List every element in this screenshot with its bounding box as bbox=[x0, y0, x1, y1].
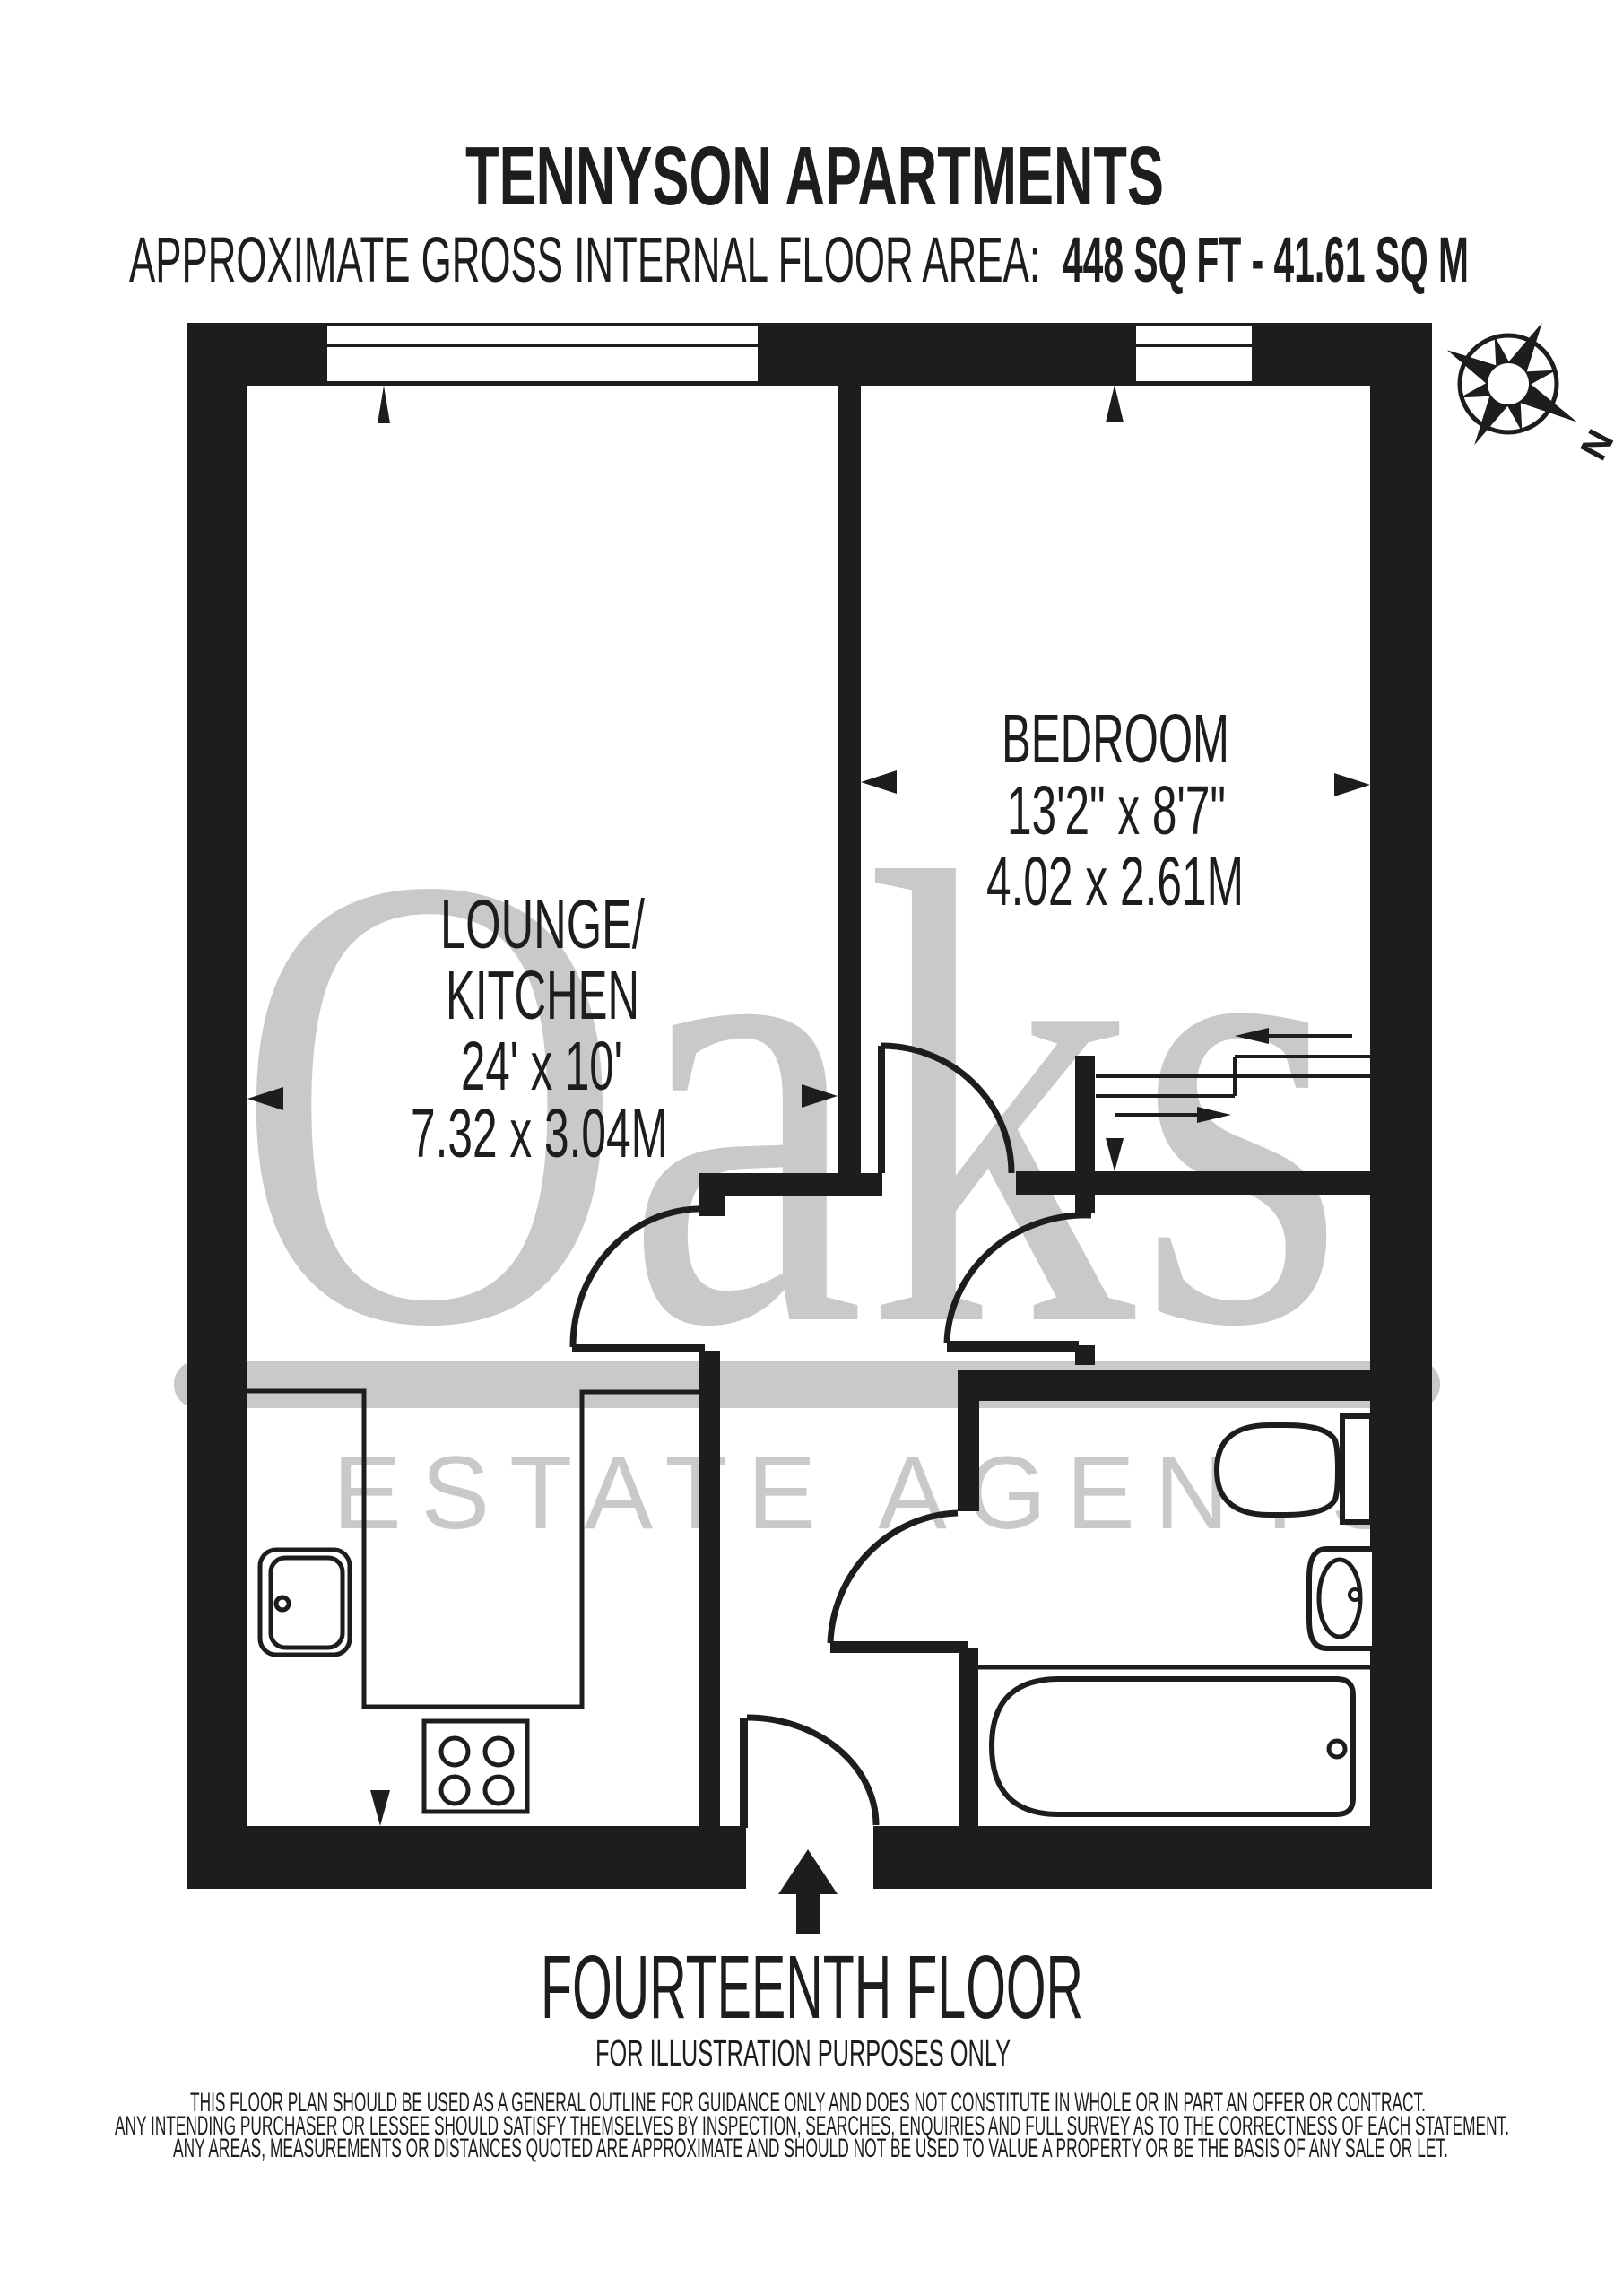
svg-text:LOUNGE/: LOUNGE/ bbox=[440, 886, 645, 963]
svg-text:KITCHEN: KITCHEN bbox=[446, 957, 639, 1034]
svg-text:TENNYSON APARTMENTS: TENNYSON APARTMENTS bbox=[465, 129, 1164, 222]
svg-text:FOURTEENTH FLOOR: FOURTEENTH FLOOR bbox=[541, 1937, 1083, 2038]
svg-text:13'2" x 8'7": 13'2" x 8'7" bbox=[1007, 772, 1226, 849]
svg-text:ANY AREAS, MEASUREMENTS OR DIS: ANY AREAS, MEASUREMENTS OR DISTANCES QUO… bbox=[173, 2134, 1448, 2163]
svg-text:7.32 x 3.04M: 7.32 x 3.04M bbox=[411, 1095, 668, 1172]
svg-text:APPROXIMATE GROSS INTERNAL FLO: APPROXIMATE GROSS INTERNAL FLOOR AREA: bbox=[129, 225, 1040, 296]
svg-text:24' x 10': 24' x 10' bbox=[461, 1028, 622, 1105]
svg-text:448 SQ FT - 41.61 SQ M: 448 SQ FT - 41.61 SQ M bbox=[1063, 225, 1469, 296]
svg-text:4.02 x 2.61M: 4.02 x 2.61M bbox=[986, 843, 1244, 920]
svg-text:FOR ILLUSTRATION PURPOSES ONLY: FOR ILLUSTRATION PURPOSES ONLY bbox=[595, 2032, 1011, 2074]
svg-text:BEDROOM: BEDROOM bbox=[1002, 700, 1229, 778]
